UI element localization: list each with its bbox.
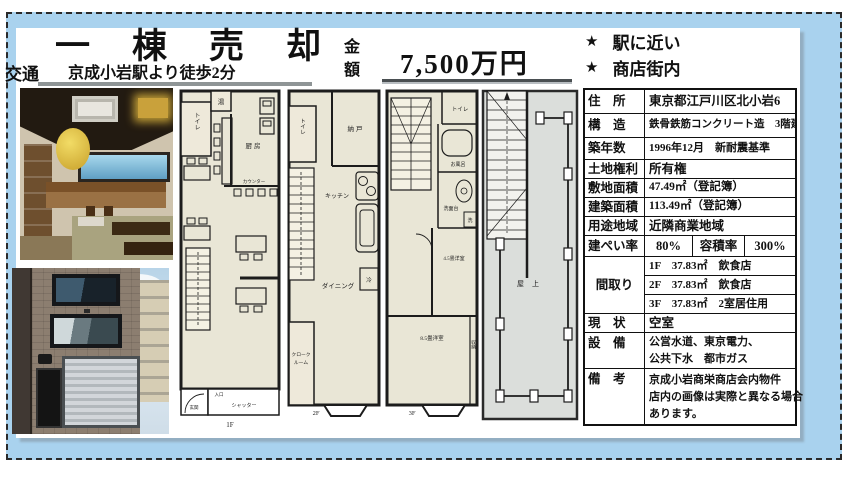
svg-text:洗面台: 洗面台	[443, 205, 458, 212]
floorplan-3f: トイレ お風呂 洗面台 洗 4.5畳洋室 8.5畳洋室 収納	[384, 88, 480, 433]
entrance-door	[36, 368, 62, 428]
transport-underline	[38, 82, 312, 86]
table-row: 建築面積 113.49㎡（登記簿）	[585, 198, 795, 217]
table-row-layout: 間取り 1F 37.83㎡ 飲食店 2F 37.83㎡ 飲食店 3F 37.83…	[585, 257, 795, 314]
facilities-line: 公営水道、東京電力、	[649, 334, 795, 351]
caption-1f: 1F	[226, 421, 234, 429]
svg-text:収納: 収納	[471, 339, 477, 351]
svg-text:シャッター: シャッター	[231, 402, 256, 409]
table-row: 土地権利 所有権	[585, 160, 795, 179]
row-label: 敷地面積	[585, 179, 645, 197]
row-value: 113.49㎡（登記簿）	[645, 198, 795, 216]
coverage-value: 80%	[645, 236, 693, 256]
entrance-lamp	[38, 354, 52, 364]
svg-text:カウンター: カウンター	[243, 178, 266, 185]
row-label: 土地権利	[585, 160, 645, 178]
remarks-line: あります。	[649, 406, 803, 423]
highlight-row: ★ 駅に近い	[585, 28, 680, 54]
remarks-line: 京成小岩商栄商店会内物件	[649, 372, 803, 389]
svg-text:トイレ: トイレ	[299, 118, 306, 135]
back-window	[78, 152, 170, 182]
facilities-line: 公共下水 都市ガス	[649, 351, 795, 368]
svg-text:冷: 冷	[366, 276, 372, 284]
exterior-photo	[12, 268, 169, 434]
highlights: ★ 駅に近い ★ 商店街内	[585, 28, 680, 80]
far-value: 300%	[745, 236, 795, 256]
svg-text:8.5畳洋室: 8.5畳洋室	[420, 334, 444, 342]
entrance-1f: 玄関 入口 シャッター	[181, 389, 279, 415]
property-table: 住 所 東京都江戸川区北小岩6 構 造 鉄骨鉄筋コンクリート造 3階建 築年数 …	[583, 88, 797, 426]
stairs-2f	[289, 168, 314, 280]
table-row: 用途地域 近隣商業地域	[585, 217, 795, 236]
svg-text:クローク: クローク	[291, 352, 310, 358]
stairs-3f	[391, 98, 431, 190]
row-value: 47.49㎡（登記簿）	[645, 179, 795, 197]
low-table	[112, 222, 170, 235]
window-3f	[52, 274, 120, 306]
toilet-1f: トイレ	[181, 102, 211, 156]
price-underline	[382, 79, 572, 82]
row-value: 近隣商業地域	[645, 217, 795, 235]
air-conditioner	[72, 96, 118, 122]
table-row: 構 造 鉄骨鉄筋コンクリート造 3階建	[585, 114, 795, 138]
caption-2f: 2F	[313, 410, 320, 417]
highlight-text: 駅に近い	[612, 29, 680, 54]
table-row-facilities: 設 備 公営水道、東京電力、 公共下水 都市ガス	[585, 333, 795, 369]
svg-text:玄関: 玄関	[190, 404, 199, 411]
layout-line: 3F 37.83㎡ 2室居住用	[645, 295, 795, 313]
table-row-ratios: 建ぺい率 80% 容積率 300%	[585, 236, 795, 257]
price-value: 7,500万円	[400, 42, 529, 81]
porch-3f	[422, 405, 465, 416]
counter-top	[46, 182, 166, 192]
row-label: 構 造	[585, 114, 645, 137]
star-icon: ★	[585, 32, 598, 50]
row-label: 備 考	[585, 369, 645, 424]
svg-text:トイレ: トイレ	[452, 107, 469, 113]
table-row-remarks: 備 考 京成小岩商栄商店会内物件 店内の画像は実際と異なる場合 あります。	[585, 369, 795, 424]
row-label: 設 備	[585, 333, 645, 368]
remarks-line: 店内の画像は実際と異なる場合	[649, 389, 803, 406]
price-label-line1: 金	[344, 36, 360, 59]
highlight-row: ★ 商店街内	[585, 54, 680, 80]
table-row: 築年数 1996年12月 新耐震基準	[585, 138, 795, 160]
svg-text:納戸: 納戸	[348, 124, 365, 133]
row-value: 1996年12月 新耐震基準	[645, 138, 795, 159]
interior-photo	[20, 88, 173, 260]
shutter	[62, 356, 140, 428]
floorplan-1f: トイレ 湯 厨房 カウンター	[178, 88, 282, 433]
svg-text:厨房: 厨房	[246, 141, 263, 150]
caption-3f: 3F	[409, 410, 416, 417]
roof-label: 屋上	[517, 279, 547, 288]
porch-2f	[324, 405, 367, 416]
row-value: 鉄骨鉄筋コンクリート造 3階建	[645, 114, 795, 137]
table-row: 現 状 空室	[585, 314, 795, 333]
svg-text:お風呂: お風呂	[450, 161, 465, 168]
row-label: 築年数	[585, 138, 645, 159]
layout-lines: 1F 37.83㎡ 飲食店 2F 37.83㎡ 飲食店 3F 37.83㎡ 2室…	[645, 257, 795, 313]
svg-text:4.5畳洋室: 4.5畳洋室	[443, 255, 464, 262]
svg-text:ルーム: ルーム	[294, 360, 308, 366]
stairs-1f	[186, 248, 210, 330]
layout-line: 2F 37.83㎡ 飲食店	[645, 276, 795, 295]
transport-label: 交通	[5, 60, 39, 85]
highlight-text: 商店街内	[612, 55, 680, 80]
row-value: 所有権	[645, 160, 795, 178]
lantern	[56, 128, 90, 170]
transport-value: 京成小岩駅より徒歩2分	[68, 59, 236, 83]
row-label: 現 状	[585, 314, 645, 332]
cloakroom-2f: クローク ルーム	[289, 322, 314, 405]
layout-line: 1F 37.83㎡ 飲食店	[645, 257, 795, 276]
svg-text:湯: 湯	[218, 97, 225, 106]
row-value: 東京都江戸川区北小岩6	[645, 90, 795, 113]
flyer-page: 一棟売却 交通 京成小岩駅より徒歩2分 金 額 7,500万円 ★ 駅に近い ★…	[0, 0, 852, 481]
row-value: 空室	[645, 314, 795, 332]
row-label: 用途地域	[585, 217, 645, 235]
facilities-lines: 公営水道、東京電力、 公共下水 都市ガス	[645, 333, 795, 368]
dining-label-2f: ダイニング	[322, 281, 355, 290]
wood-floor	[20, 236, 72, 260]
row-label: 建ぺい率	[585, 236, 645, 256]
floorplan-2f: 納戸 トイレ キッチン 冷 ダイニング クローク ルーム 2F	[286, 88, 382, 433]
svg-text:洗: 洗	[467, 217, 472, 224]
price-label-line2: 額	[344, 59, 360, 82]
vent	[84, 309, 90, 313]
table-row: 住 所 東京都江戸川区北小岩6	[585, 90, 795, 114]
far-label: 容積率	[693, 236, 745, 256]
water-heater-1f: 湯	[211, 91, 231, 111]
toilet-2f: トイレ	[289, 106, 316, 162]
cushion	[78, 217, 104, 226]
svg-text:キッチン: キッチン	[325, 193, 349, 200]
row-label: 住 所	[585, 90, 645, 113]
svg-text:トイレ: トイレ	[193, 112, 200, 130]
neighbor-building-right	[140, 280, 169, 402]
floorplan-roof: 屋上	[480, 88, 580, 433]
star-icon: ★	[585, 58, 598, 76]
price-label: 金 額	[344, 36, 360, 82]
neighbor-building-left	[12, 268, 32, 434]
table-row: 敷地面積 47.49㎡（登記簿）	[585, 179, 795, 198]
row-label: 建築面積	[585, 198, 645, 216]
ceiling-light	[138, 98, 168, 118]
window-2f	[50, 314, 122, 348]
row-label: 間取り	[585, 257, 645, 313]
remarks-lines: 京成小岩商栄商店会内物件 店内の画像は実際と異なる場合 あります。	[645, 369, 803, 424]
low-table	[124, 242, 173, 255]
